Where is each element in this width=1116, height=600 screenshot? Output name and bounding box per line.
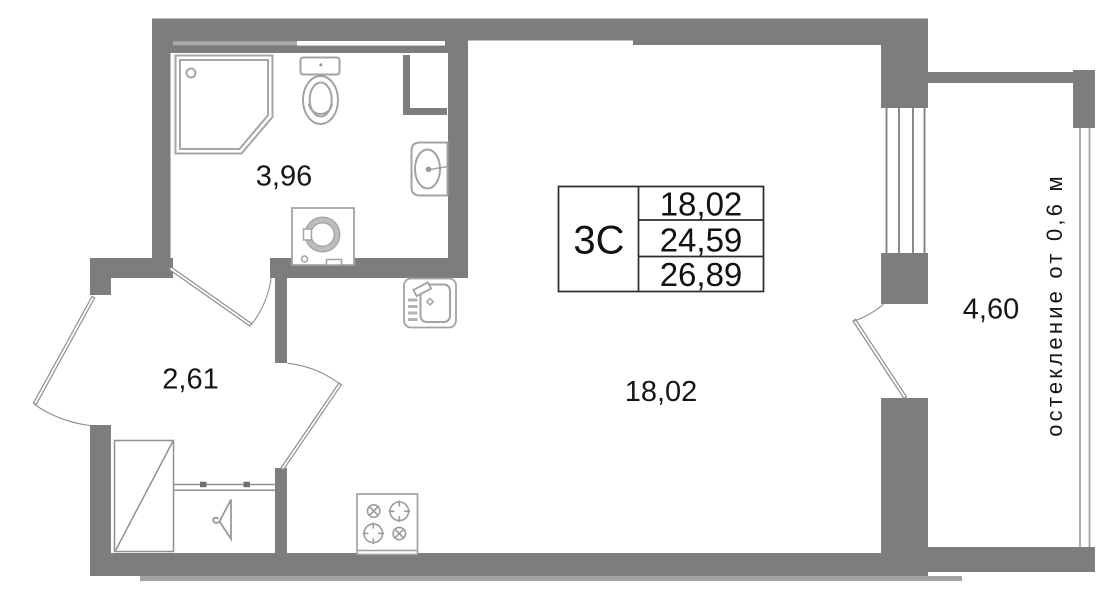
svg-text:18,02: 18,02	[625, 376, 698, 408]
svg-text:4,60: 4,60	[963, 294, 1019, 326]
svg-text:3С: 3С	[573, 219, 624, 263]
svg-text:остекление от 0,6 м: остекление от 0,6 м	[1042, 173, 1067, 437]
svg-text:2,61: 2,61	[162, 364, 218, 396]
svg-text:24,59: 24,59	[660, 222, 743, 259]
svg-text:26,89: 26,89	[660, 256, 743, 293]
svg-text:18,02: 18,02	[660, 186, 743, 223]
svg-text:3,96: 3,96	[256, 161, 312, 193]
